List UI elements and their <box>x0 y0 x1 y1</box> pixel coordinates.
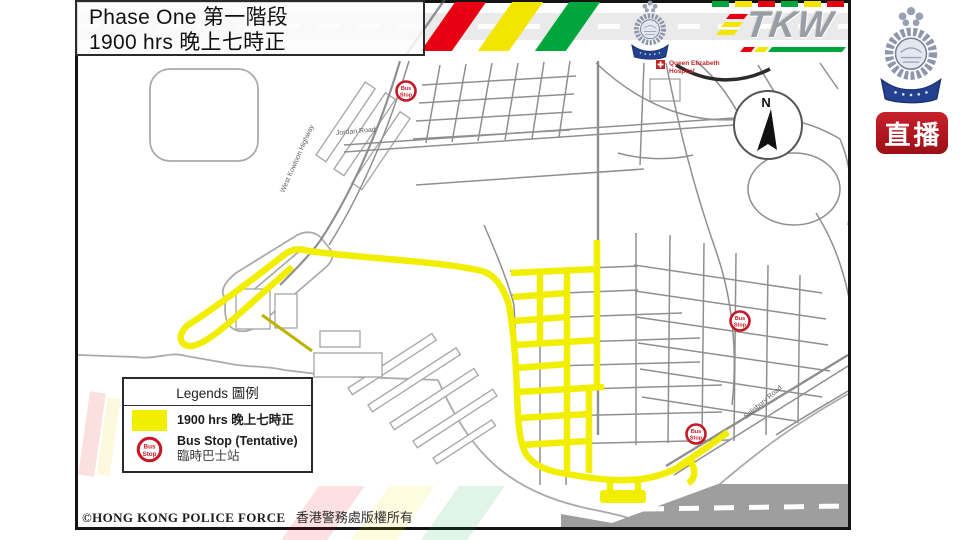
tkw-stripe <box>726 14 748 19</box>
police-badge-icon <box>872 6 950 104</box>
svg-text:N: N <box>761 95 770 110</box>
svg-text:Stop: Stop <box>143 450 157 457</box>
tkw-stripe <box>721 22 743 27</box>
svg-text:Bus: Bus <box>735 316 745 322</box>
tkw-letters: TKW <box>743 4 836 46</box>
legend-bus-label-en: Bus Stop (Tentative) <box>177 434 298 449</box>
svg-text:Queen Elizabeth: Queen Elizabeth <box>669 60 720 67</box>
svg-text:Hospital: Hospital <box>669 68 695 75</box>
svg-text:Stop: Stop <box>734 323 747 329</box>
tkw-stripe <box>716 30 738 35</box>
yellow-swatch <box>132 410 167 431</box>
phase-title-line2: 1900 hrs 晚上七時正 <box>89 30 423 55</box>
bus-stop-icon: Bus Stop <box>397 82 416 101</box>
svg-text:Stop: Stop <box>400 93 413 99</box>
copyright-en: ©HONG KONG POLICE FORCE <box>82 510 285 525</box>
phase-title-box: Phase One 第一階段 1900 hrs 晚上七時正 <box>75 0 425 56</box>
legend-item-phase: 1900 hrs 晚上七時正 <box>132 410 311 431</box>
tkw-underline <box>740 47 755 52</box>
tkw-logo: TKW <box>698 0 850 58</box>
bus-stop-icon: Bus Stop <box>136 436 163 463</box>
legend-phase-label: 1900 hrs 晚上七時正 <box>177 413 294 428</box>
tkw-underline <box>768 47 846 52</box>
chevron-stripes <box>428 0 608 54</box>
bus-stop-icon: Bus Stop <box>731 312 750 331</box>
phase-title-line1: Phase One 第一階段 <box>89 5 423 30</box>
live-badge: 直播 <box>876 112 948 154</box>
red-stripe <box>421 2 486 51</box>
svg-text:Stop: Stop <box>690 436 703 442</box>
yellow-stripe <box>478 2 543 51</box>
legend-item-bus-stop: Bus Stop Bus Stop (Tentative) 臨時巴士站 <box>132 434 311 464</box>
legend-divider <box>124 405 311 406</box>
copyright-zh: 香港警務處版權所有 <box>296 510 413 525</box>
broadcast-slide: { "header": { "title_line1": "Phase One … <box>0 0 960 540</box>
tkw-underline <box>754 47 769 52</box>
legend-title: Legends 圖例 <box>124 379 311 402</box>
copyright-notice: ©HONG KONG POLICE FORCE 香港警務處版權所有 <box>82 507 413 527</box>
green-stripe <box>535 2 600 51</box>
svg-text:Bus: Bus <box>144 443 156 450</box>
road-label: West Kowloon Highway <box>279 123 315 193</box>
legend-box: Legends 圖例 1900 hrs 晚上七時正 Bus Stop Bus S… <box>122 377 313 473</box>
svg-text:Bus: Bus <box>691 429 701 435</box>
hospital-marker: Queen Elizabeth Hospital <box>656 60 720 75</box>
bus-stop-icon: Bus Stop <box>687 425 706 444</box>
legend-bus-label: Bus Stop (Tentative) 臨時巴士站 <box>177 434 298 464</box>
svg-text:Bus: Bus <box>401 86 411 92</box>
compass-rose: N <box>734 91 802 159</box>
legend-bus-label-zh: 臨時巴士站 <box>177 449 298 464</box>
police-badge-icon <box>622 0 678 60</box>
